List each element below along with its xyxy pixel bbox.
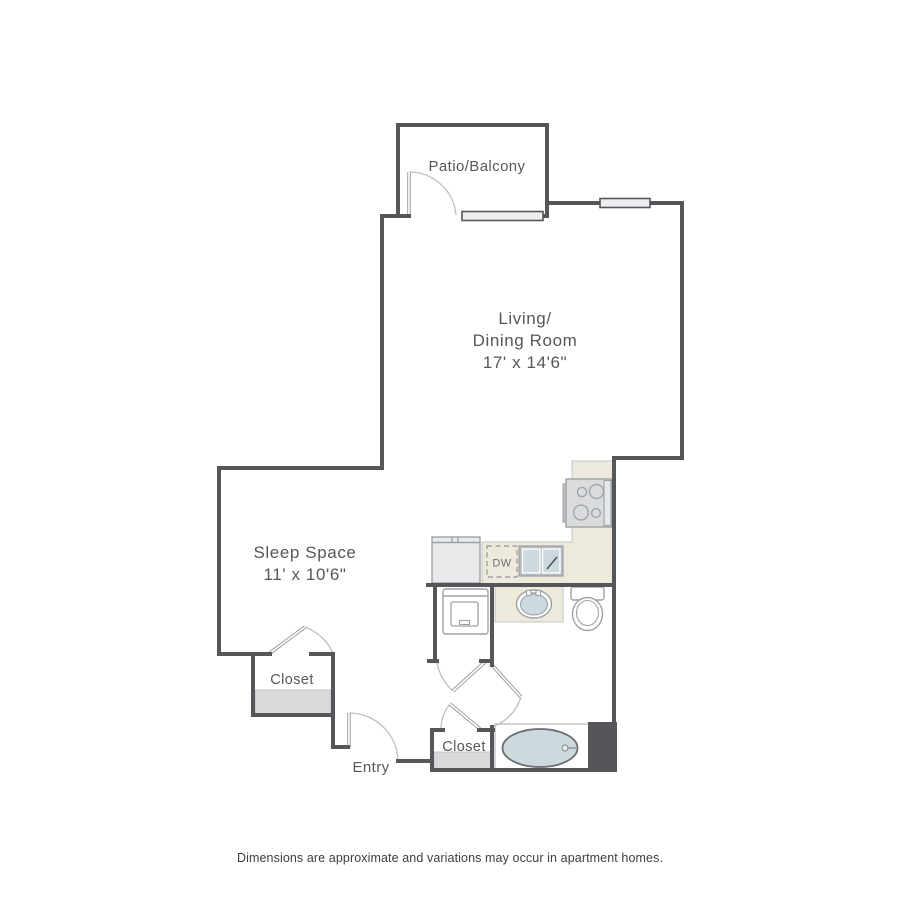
entry-door: [349, 713, 398, 760]
stove: [563, 479, 612, 527]
living-room-window: [600, 199, 650, 208]
closet-left-shelf: [255, 690, 331, 714]
floor-plan-page: DW: [0, 0, 900, 900]
balcony-slider-window: [462, 212, 543, 221]
floor-plan: DW: [0, 0, 900, 900]
closet-bottom-label: Closet: [442, 739, 486, 755]
sleep-space-dimensions: 11' x 10'6": [263, 565, 346, 584]
refrigerator: [432, 537, 480, 583]
balcony-door: [409, 172, 456, 215]
kitchen-sink: [519, 546, 563, 576]
living-room-label-line2: Dining Room: [473, 331, 578, 350]
washer: [443, 589, 488, 634]
dishwasher-label: DW: [492, 558, 511, 570]
closet-left-door: [270, 627, 333, 653]
toilet: [571, 587, 604, 631]
patio-label: Patio/Balcony: [429, 158, 526, 175]
hallway-door: [437, 661, 486, 691]
bathroom-sink: [517, 590, 552, 618]
living-room-label-line1: Living/: [498, 309, 551, 328]
closet-left-label: Closet: [270, 672, 314, 688]
sleep-space-label: Sleep Space: [253, 543, 356, 562]
living-room-dimensions: 17' x 14'6": [483, 353, 567, 372]
bathtub: [503, 729, 578, 767]
entry-label: Entry: [352, 759, 389, 776]
closet-bottom-door: [441, 704, 480, 729]
footer-disclaimer: Dimensions are approximate and variation…: [237, 851, 663, 865]
bathroom-door: [492, 665, 521, 727]
